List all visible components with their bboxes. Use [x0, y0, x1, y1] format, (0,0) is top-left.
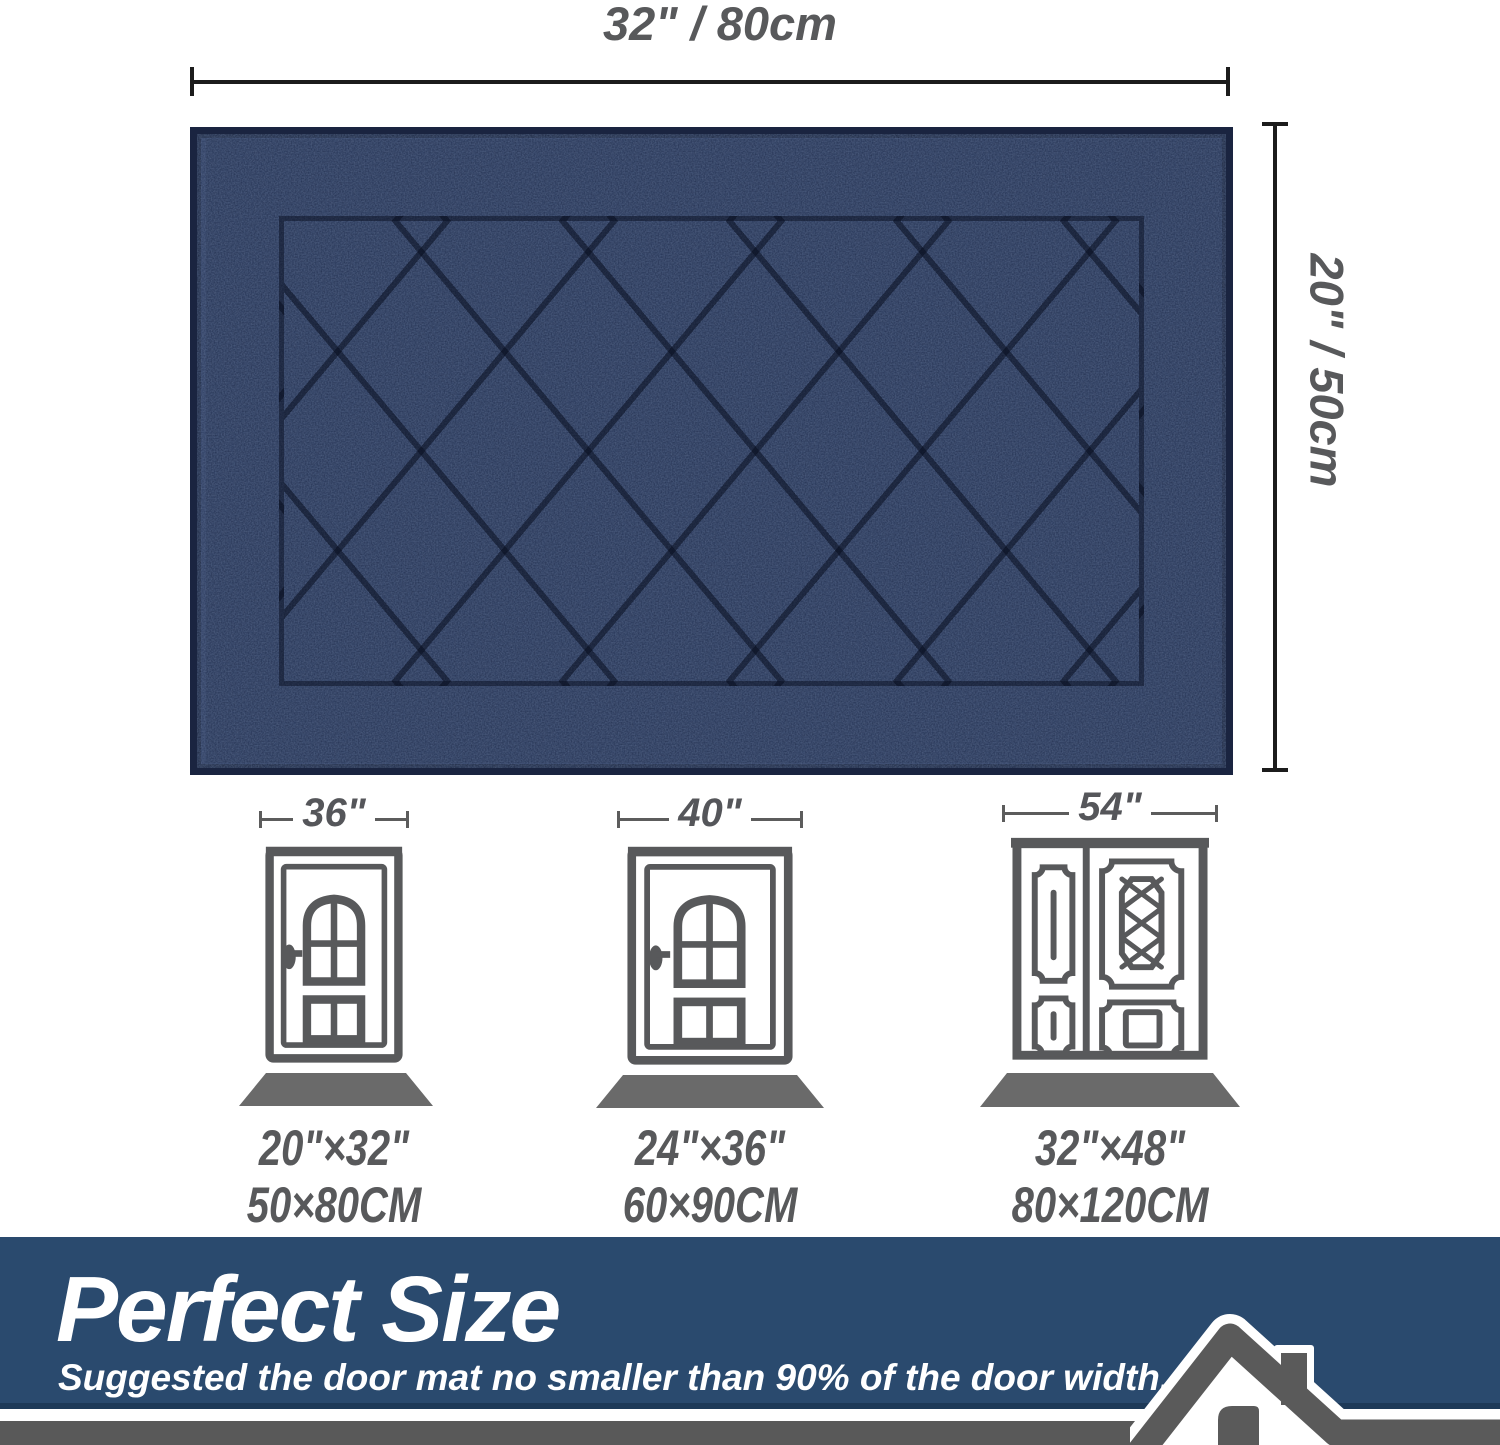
- dimension-line: [375, 818, 406, 821]
- tick-icon: [800, 811, 803, 828]
- door-54-size-caption: 32"×48" 80×120CM: [990, 1120, 1230, 1234]
- door-36-width-label: 36": [293, 798, 374, 828]
- door-mat-trapezoid: [980, 1073, 1240, 1107]
- banner-subtitle: Suggested the door mat no smaller than 9…: [58, 1357, 1170, 1399]
- product-size-infographic: 32" / 80cm 20" / 50cm 36": [0, 0, 1500, 1445]
- door-54-dimension: 54": [1002, 798, 1218, 828]
- door-40-width-label: 40": [669, 798, 750, 828]
- tick-icon: [1215, 805, 1218, 822]
- door-mat-trapezoid: [239, 1073, 433, 1106]
- size-inches: 20"×32": [214, 1120, 454, 1177]
- door-40-size-caption: 24"×36" 60×90CM: [590, 1120, 830, 1234]
- door-36-size-caption: 20"×32" 50×80CM: [214, 1120, 454, 1234]
- side-dimension-tick-top: [1262, 122, 1288, 126]
- top-dimension-line: [192, 80, 1228, 84]
- door-36-dimension: 36": [259, 804, 409, 834]
- side-dimension-label: 20" / 50cm: [1197, 240, 1457, 500]
- single-door-illustration-36: [264, 842, 404, 1065]
- size-cm: 50×80CM: [214, 1177, 454, 1234]
- dimension-line: [1005, 812, 1069, 815]
- size-inches: 24"×36": [590, 1120, 830, 1177]
- dimension-line: [1151, 812, 1215, 815]
- tick-icon: [406, 811, 409, 828]
- dimension-line: [620, 818, 669, 821]
- door-40-dimension: 40": [617, 804, 803, 834]
- house-icon: [1130, 1285, 1500, 1445]
- mat-diamond-pattern: [279, 216, 1144, 686]
- size-inches: 32"×48": [990, 1120, 1230, 1177]
- double-door-illustration-54: [1011, 832, 1209, 1067]
- size-cm: 80×120CM: [990, 1177, 1230, 1234]
- side-dimension-tick-bottom: [1262, 768, 1288, 772]
- top-dimension-tick-right: [1226, 67, 1230, 96]
- banner-title: Perfect Size: [56, 1256, 559, 1363]
- top-dimension-label: 32" / 80cm: [420, 0, 1020, 51]
- dimension-line: [751, 818, 800, 821]
- single-door-illustration-40: [626, 842, 794, 1067]
- dimension-line: [262, 818, 293, 821]
- door-54-width-label: 54": [1069, 792, 1150, 822]
- top-dimension-tick-left: [190, 67, 194, 96]
- door-mat-photo: [190, 127, 1233, 775]
- door-mat-trapezoid: [596, 1075, 824, 1108]
- size-cm: 60×90CM: [590, 1177, 830, 1234]
